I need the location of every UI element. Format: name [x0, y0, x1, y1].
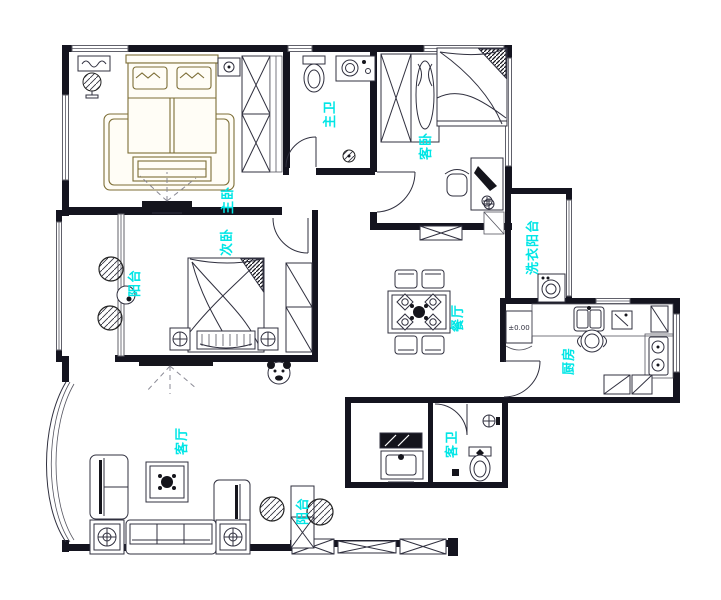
window-kitchen-right	[674, 314, 680, 372]
tv-living	[139, 358, 213, 394]
nightstand-lamp-right	[258, 328, 278, 350]
door-guest-bedroom	[377, 172, 415, 212]
window-balcony-left	[57, 222, 62, 350]
bay-window-curve	[47, 382, 75, 542]
room-label-master-bathroom: 主卫	[322, 100, 338, 128]
guest-bedroom: 客卧	[377, 48, 507, 240]
mirror-cabinet	[380, 433, 422, 448]
room-label-living-room: 客厅	[174, 427, 190, 455]
bottom-balcony: 阳台	[295, 497, 333, 525]
wardrobe-second	[286, 263, 312, 352]
door-kitchen	[504, 361, 540, 397]
plant-small	[343, 150, 355, 162]
fan	[83, 73, 101, 98]
master-bathroom: 主卫	[303, 56, 375, 162]
room-label-bottom-balcony: 阳台	[295, 497, 311, 525]
floor-plan-canvas: 主卧 主卫	[0, 0, 721, 600]
coffee-table	[146, 462, 188, 502]
door-master-bath	[286, 137, 316, 167]
desk	[471, 158, 503, 210]
toilet-guest	[469, 447, 491, 481]
vanity-basin	[381, 451, 423, 482]
room-label-guest-bedroom: 客卧	[418, 132, 434, 160]
guest-bathroom: 客卫	[380, 404, 500, 482]
nightstand	[218, 58, 240, 76]
single-bed-guest	[437, 48, 507, 126]
window-laundry-right	[567, 200, 572, 296]
room-label-laundry-balcony: 洗衣阳台	[525, 219, 541, 275]
window-balcony-bedroom-slider	[118, 214, 124, 356]
bed-bench	[133, 157, 211, 181]
room-label-kitchen: 厨房	[561, 347, 577, 375]
wardrobe-guest	[381, 54, 439, 142]
side-table-left	[90, 520, 124, 554]
plant-pot	[98, 306, 122, 330]
kitchen-sink	[574, 306, 604, 331]
nightstand-lamp-left	[170, 328, 190, 350]
cutting-board	[612, 311, 632, 329]
bed-foot-bench	[197, 331, 255, 349]
floor-plan-svg: 主卧 主卫	[0, 0, 721, 600]
living-room: 客厅	[90, 358, 314, 554]
stool	[78, 56, 110, 71]
plant-pot	[260, 497, 284, 521]
dining-room: 餐厅	[388, 270, 466, 354]
floor-drain	[452, 469, 459, 476]
kitchen: ±0.00 厨房	[504, 304, 673, 397]
side-balcony: 阳台	[98, 257, 143, 330]
armchair-right	[214, 480, 250, 524]
stove	[649, 337, 668, 375]
balcony-railing	[292, 539, 446, 554]
entry-cabinet	[420, 226, 462, 240]
second-bedroom: 次卧	[170, 218, 312, 352]
toilet-master	[303, 56, 325, 92]
wardrobe-master	[242, 56, 282, 172]
master-bedroom: 主卧	[78, 55, 316, 214]
door-second-bedroom	[273, 218, 308, 253]
base-cabinets	[604, 375, 652, 394]
shower-head	[483, 415, 500, 427]
side-table-right	[216, 520, 250, 554]
panda-mat	[267, 361, 291, 384]
double-bed	[126, 55, 218, 153]
room-label-side-balcony: 阳台	[127, 269, 143, 297]
desk-chair	[445, 170, 469, 197]
room-label-dining-room: 餐厅	[450, 304, 466, 333]
plant-pot	[99, 257, 123, 281]
window-kitchen-top	[596, 299, 630, 304]
table-plant	[161, 476, 173, 488]
armchair-left	[90, 455, 128, 519]
cooking-pot	[578, 330, 607, 352]
fridge: ±0.00	[506, 311, 532, 350]
tall-cabinet	[651, 306, 668, 332]
room-label-second-bedroom: 次卧	[219, 228, 235, 256]
room-label-master-bedroom: 主卧	[220, 186, 236, 214]
floor-drain	[484, 199, 494, 209]
vanity-sink	[336, 56, 375, 81]
window-master-left	[63, 95, 69, 180]
floor-level-annotation: ±0.00	[508, 324, 529, 332]
flue-duct	[484, 212, 504, 234]
window-master-top	[72, 46, 128, 52]
room-label-guest-bathroom: 客卫	[444, 430, 460, 458]
sofa	[126, 520, 216, 554]
washing-machine	[538, 274, 565, 302]
centerpiece	[413, 306, 425, 318]
window-masterbath-top	[288, 46, 312, 52]
